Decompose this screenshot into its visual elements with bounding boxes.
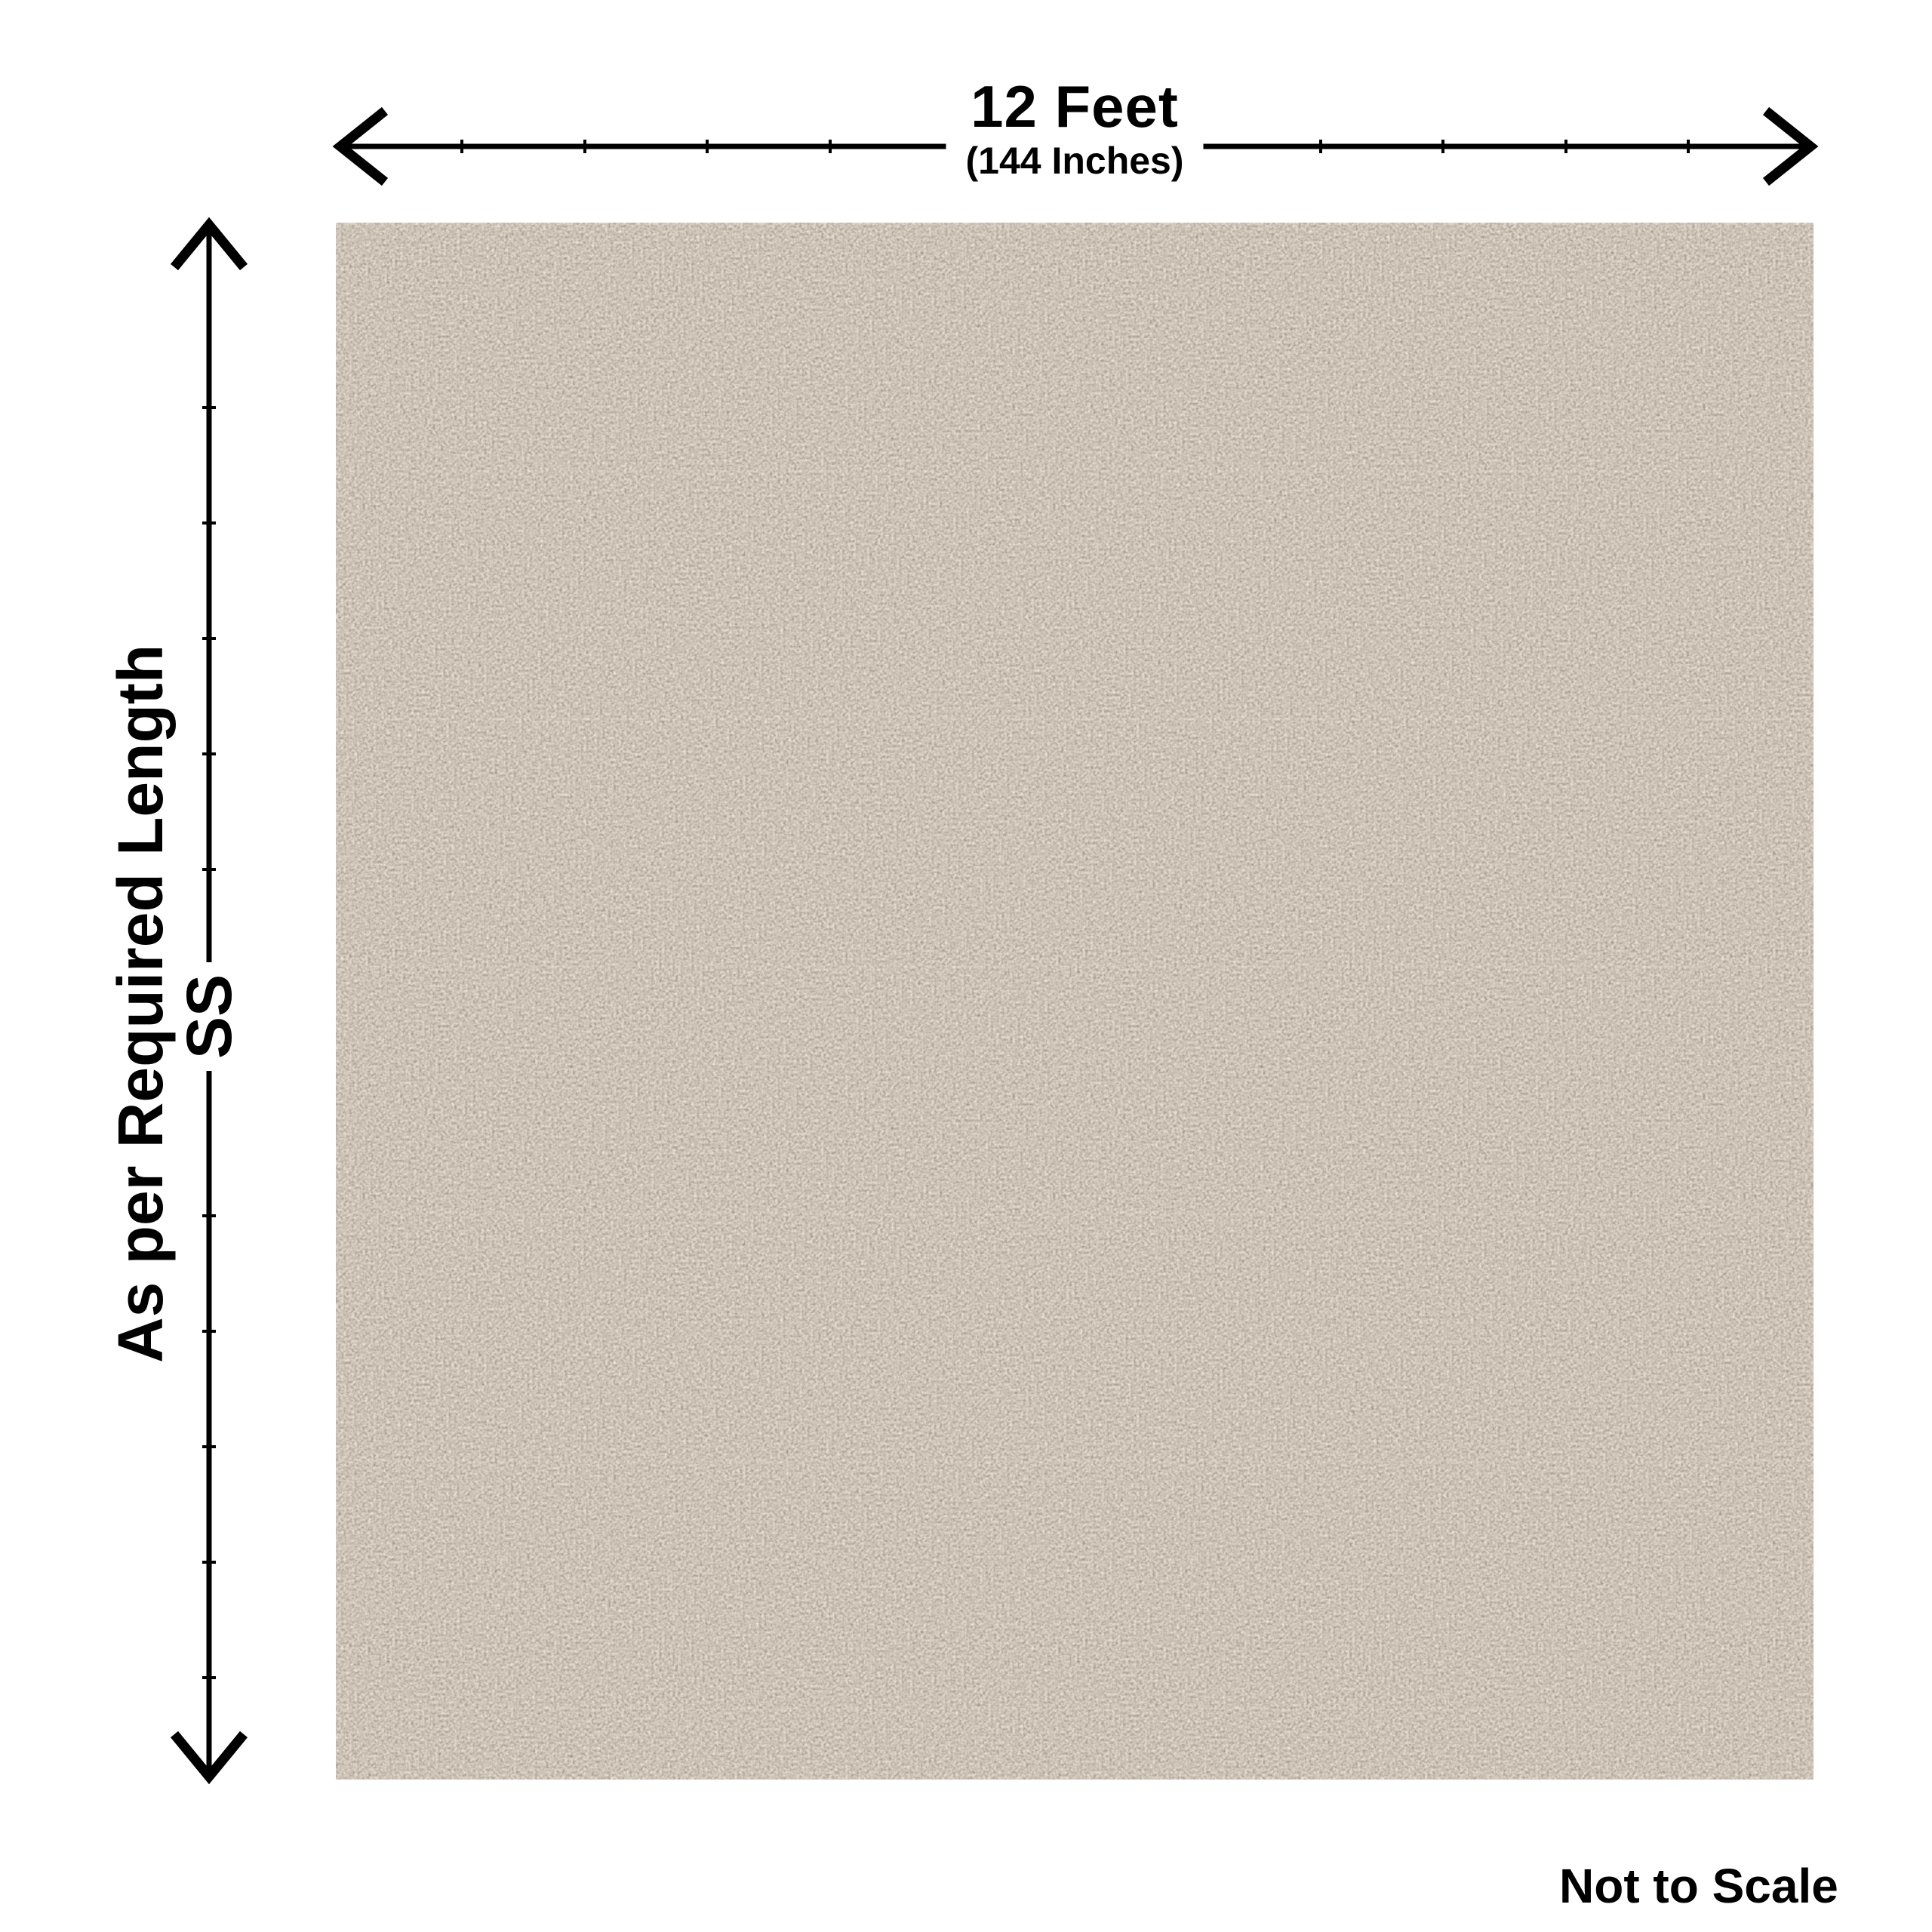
width-dimension-label: 12 Feet (144 Inches) — [946, 77, 1203, 180]
arrow-left-icon — [340, 111, 385, 182]
width-value: 12 Feet — [965, 77, 1183, 136]
arrow-right-icon — [1766, 111, 1810, 182]
height-value: As per Required Length — [109, 645, 172, 1363]
arrow-up-icon — [174, 225, 244, 267]
ss-value: SS — [176, 962, 242, 1071]
not-to-scale-note: Not to Scale — [1559, 1858, 1838, 1914]
arrow-down-icon — [174, 1734, 244, 1777]
carpet-texture — [336, 223, 1814, 1780]
width-value-inches: (144 Inches) — [965, 142, 1183, 180]
carpet-swatch — [336, 223, 1814, 1780]
dimension-diagram: 12 Feet (144 Inches) As per Required Len… — [0, 0, 1932, 1932]
